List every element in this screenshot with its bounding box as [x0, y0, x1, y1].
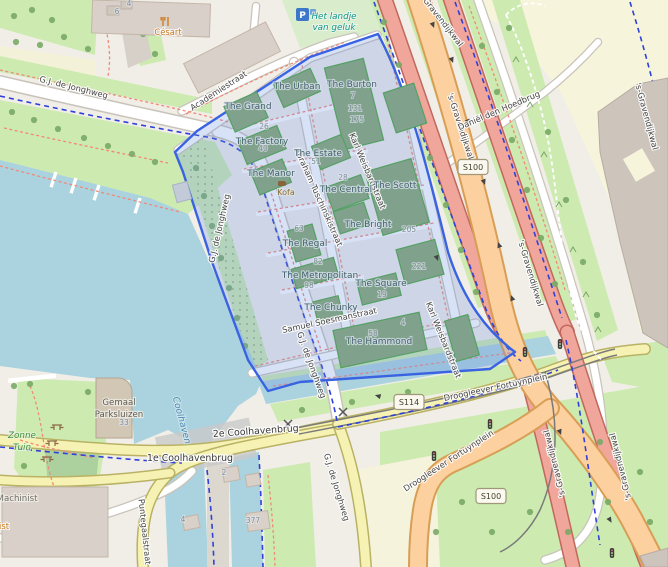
tree-icon	[381, 19, 387, 25]
house-number: 221	[412, 262, 427, 271]
cafe-icon[interactable]	[278, 181, 285, 186]
house-number: 4	[181, 515, 186, 524]
tree-icon	[473, 289, 479, 295]
tree-icon	[427, 155, 433, 161]
traffic-signal-light	[611, 552, 613, 554]
building-name-label: The Grand	[223, 102, 271, 112]
tree-icon	[647, 519, 653, 525]
area-label: Machinist	[0, 494, 38, 504]
tree-icon	[552, 281, 558, 287]
tree-icon	[152, 51, 158, 57]
building-name-label: The Square	[354, 279, 407, 289]
tree-icon	[11, 13, 17, 19]
traffic-signal-light	[433, 455, 435, 457]
traffic-signal-light	[611, 550, 613, 552]
tree-icon	[524, 187, 530, 193]
tree-icon	[637, 469, 643, 475]
tree-icon	[37, 42, 43, 48]
tree-icon	[594, 312, 600, 318]
map-canvas[interactable]: P G.J. de JonghwegAcademiestraatAbraham …	[0, 0, 668, 567]
house-number: 175	[350, 115, 365, 124]
tree-icon	[85, 389, 91, 395]
house-number: 4	[401, 318, 406, 327]
traffic-signal-light	[611, 555, 613, 557]
tree-icon	[55, 126, 61, 132]
traffic-signal-light	[433, 458, 435, 460]
traffic-signal-light	[433, 453, 435, 455]
area-label: Het landjevan geluk	[311, 12, 357, 33]
tree-icon	[31, 117, 37, 123]
traffic-signal-light	[524, 354, 526, 356]
road-shield-label: S100	[481, 492, 501, 501]
tree-icon	[349, 399, 355, 405]
tree-icon	[29, 7, 35, 13]
tree-icon	[9, 109, 15, 115]
tree-icon	[509, 137, 515, 143]
parking-icon-letter: P	[299, 11, 306, 21]
house-number: 63	[294, 224, 304, 233]
house-number: 377	[246, 516, 261, 525]
building-name-label: The Metropolitan	[281, 271, 358, 281]
tree-icon	[129, 151, 135, 157]
traffic-signal-light	[489, 423, 491, 425]
tree-icon	[21, 463, 27, 469]
tree-icon	[489, 529, 495, 535]
house-number: 2	[222, 468, 227, 477]
house-number: 6	[115, 7, 120, 16]
building-name-label: The Manor	[246, 169, 295, 179]
building-name-label: The Scott	[373, 181, 417, 191]
tree-icon	[299, 407, 305, 413]
tree-icon	[565, 529, 571, 535]
building-name-label: The Bright	[344, 220, 392, 230]
tree-icon	[13, 39, 19, 45]
tree-icon	[85, 46, 91, 52]
building-name-label: The Hammond	[345, 337, 412, 347]
tree-icon	[433, 529, 439, 535]
building-name-label: The Chunky	[303, 303, 358, 313]
house-number: 40	[258, 144, 268, 153]
tree-icon	[81, 135, 87, 141]
tree-icon	[597, 439, 603, 445]
tree-icon	[580, 259, 586, 265]
house-number: 131	[348, 104, 363, 113]
tree-icon	[443, 202, 449, 208]
tree-icon	[527, 509, 533, 515]
tree-icon	[563, 197, 569, 203]
house-number: 7	[351, 91, 356, 100]
house-number: 98	[304, 281, 314, 290]
house-number: 51	[311, 157, 321, 166]
tree-icon	[538, 235, 544, 241]
tree-icon	[396, 62, 402, 68]
house-number: 82	[313, 257, 323, 266]
tree-icon	[459, 499, 465, 505]
tree-icon	[479, 43, 485, 49]
building-name-label: The Central	[319, 185, 372, 195]
tree-icon	[458, 247, 464, 253]
traffic-signal-light	[559, 346, 561, 348]
traffic-signal-light	[489, 421, 491, 423]
house-number: 205	[402, 225, 417, 234]
tree-icon	[506, 25, 512, 31]
tree-icon	[27, 381, 33, 387]
landuse-patch	[263, 462, 316, 567]
building	[245, 473, 261, 487]
tree-icon	[61, 34, 67, 40]
building-name-label: The Regal	[282, 239, 328, 249]
traffic-signal-light	[559, 343, 561, 345]
building-name-label: The Urban	[273, 82, 321, 92]
house-number: 19	[377, 290, 387, 299]
building-gemaal-parksluizen	[96, 378, 132, 438]
map-viewport[interactable]: P G.J. de JonghwegAcademiestraatAbraham …	[0, 0, 668, 567]
tree-icon	[605, 499, 611, 505]
tree-icon	[152, 159, 158, 165]
tree-icon	[11, 383, 17, 389]
tree-icon	[49, 17, 55, 23]
road-shield-label: S100	[463, 163, 483, 172]
tree-icon	[545, 129, 551, 135]
house-number: 4	[127, 0, 132, 8]
street-label: 1e Coolhavenbrug	[147, 453, 233, 464]
area-label: ist	[0, 521, 10, 531]
traffic-signal-light	[524, 349, 526, 351]
traffic-signal-light	[524, 351, 526, 353]
traffic-signal-light	[559, 341, 561, 343]
house-number: 26	[259, 122, 269, 131]
poi-label: Césart	[154, 27, 182, 37]
house-number: 28	[338, 173, 348, 182]
house-number: 58	[368, 329, 378, 338]
building-name-label: The Burton	[326, 80, 377, 90]
tree-icon	[494, 89, 500, 95]
house-number: 33	[119, 418, 129, 427]
road-shield-label: S114	[399, 398, 419, 407]
tree-icon	[105, 143, 111, 149]
poi-label: Kofa	[277, 188, 295, 197]
